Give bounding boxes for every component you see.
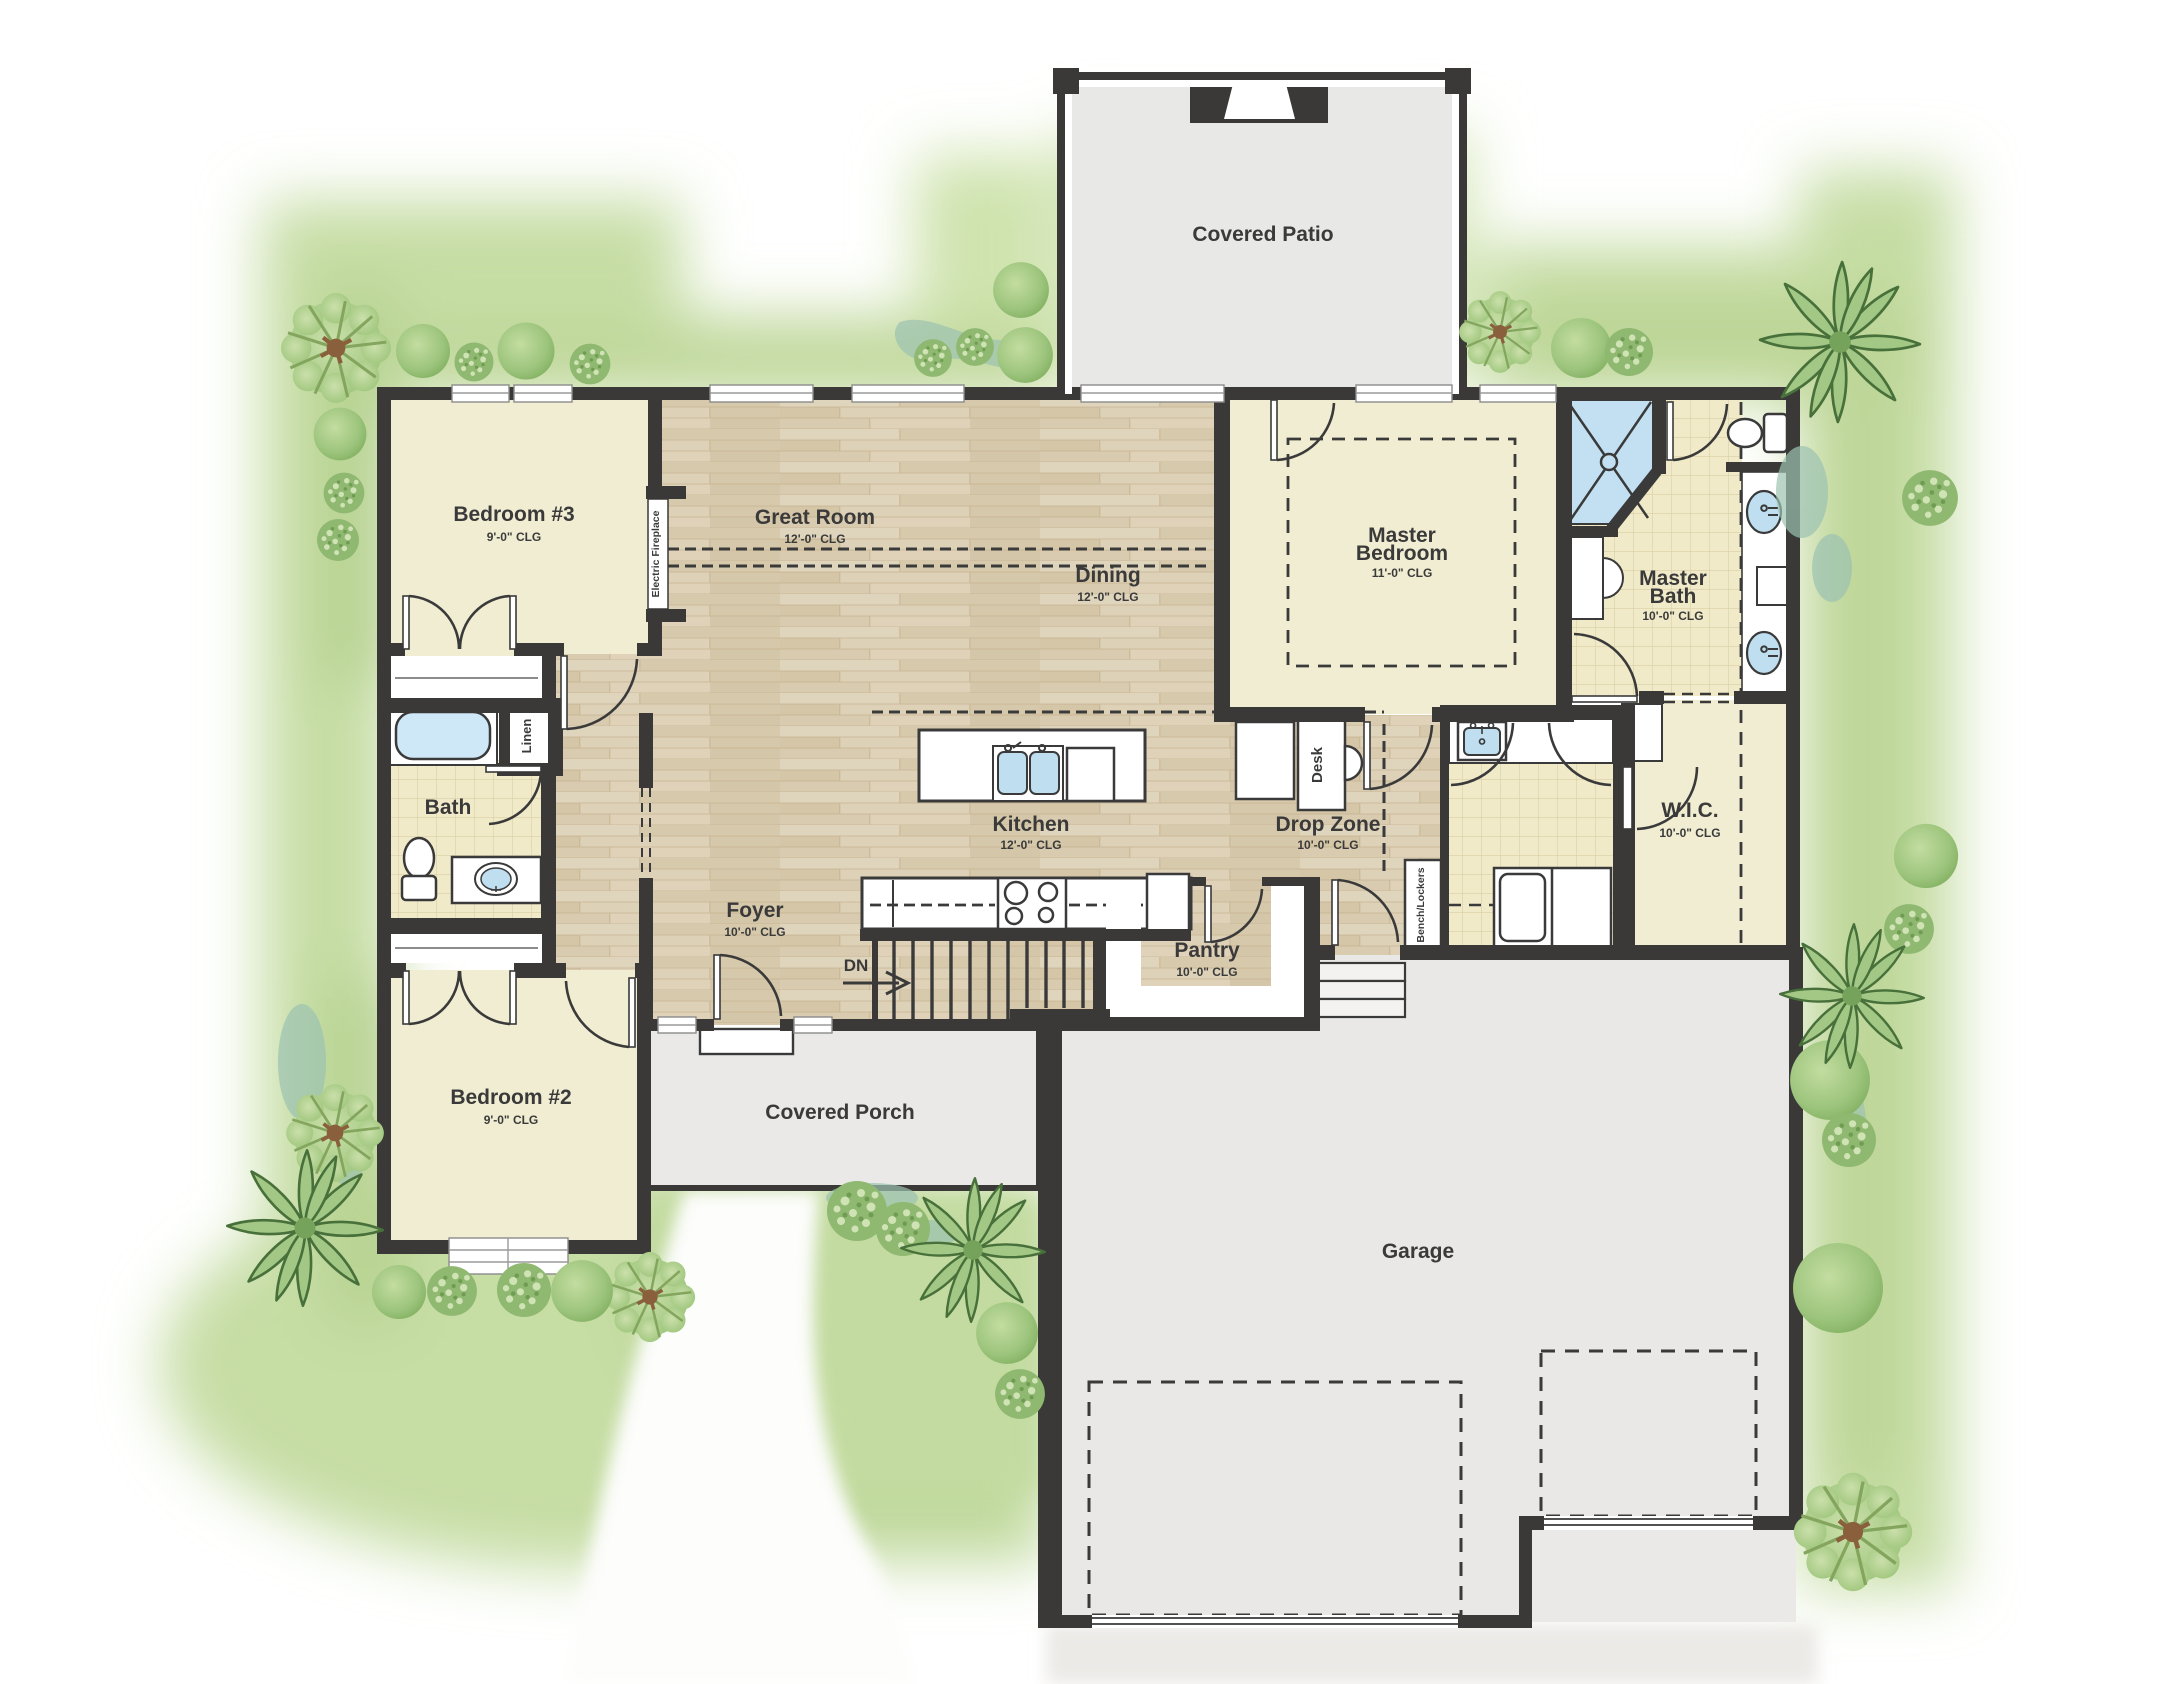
svg-text:Dining: Dining: [1075, 564, 1140, 587]
svg-text:Covered Patio: Covered Patio: [1192, 223, 1333, 246]
svg-text:Bedroom #3: Bedroom #3: [453, 503, 574, 526]
svg-text:Great Room: Great Room: [755, 506, 875, 529]
svg-text:9'-0" CLG: 9'-0" CLG: [484, 1113, 539, 1127]
svg-text:10'-0" CLG: 10'-0" CLG: [1659, 826, 1720, 840]
svg-text:10'-0" CLG: 10'-0" CLG: [1297, 838, 1358, 852]
svg-text:Bedroom #2: Bedroom #2: [450, 1086, 571, 1109]
svg-text:Electric Fireplace: Electric Fireplace: [650, 510, 662, 597]
svg-text:DN: DN: [844, 956, 869, 975]
svg-text:Bath: Bath: [425, 796, 472, 819]
svg-text:12'-0" CLG: 12'-0" CLG: [784, 532, 845, 546]
svg-text:Bench/Lockers: Bench/Lockers: [1415, 867, 1427, 942]
svg-text:11'-0" CLG: 11'-0" CLG: [1372, 566, 1433, 580]
svg-text:Bedroom: Bedroom: [1356, 542, 1448, 565]
svg-text:Desk: Desk: [1309, 746, 1326, 783]
svg-text:10'-0" CLG: 10'-0" CLG: [724, 925, 785, 939]
svg-text:Pantry: Pantry: [1174, 939, 1240, 962]
svg-text:Linen: Linen: [519, 719, 534, 754]
svg-text:Drop Zone: Drop Zone: [1276, 813, 1381, 836]
svg-text:Bath: Bath: [1650, 585, 1697, 608]
svg-text:W.I.C.: W.I.C.: [1661, 799, 1718, 822]
svg-text:12'-0" CLG: 12'-0" CLG: [1077, 590, 1138, 604]
svg-text:Kitchen: Kitchen: [992, 813, 1069, 836]
svg-text:Foyer: Foyer: [726, 899, 783, 922]
svg-text:9'-0" CLG: 9'-0" CLG: [487, 530, 542, 544]
svg-text:10'-0" CLG: 10'-0" CLG: [1176, 965, 1237, 979]
svg-text:10'-0" CLG: 10'-0" CLG: [1642, 609, 1703, 623]
svg-text:12'-0" CLG: 12'-0" CLG: [1000, 838, 1061, 852]
svg-text:Garage: Garage: [1382, 1240, 1454, 1263]
svg-text:Covered Porch: Covered Porch: [765, 1101, 914, 1124]
